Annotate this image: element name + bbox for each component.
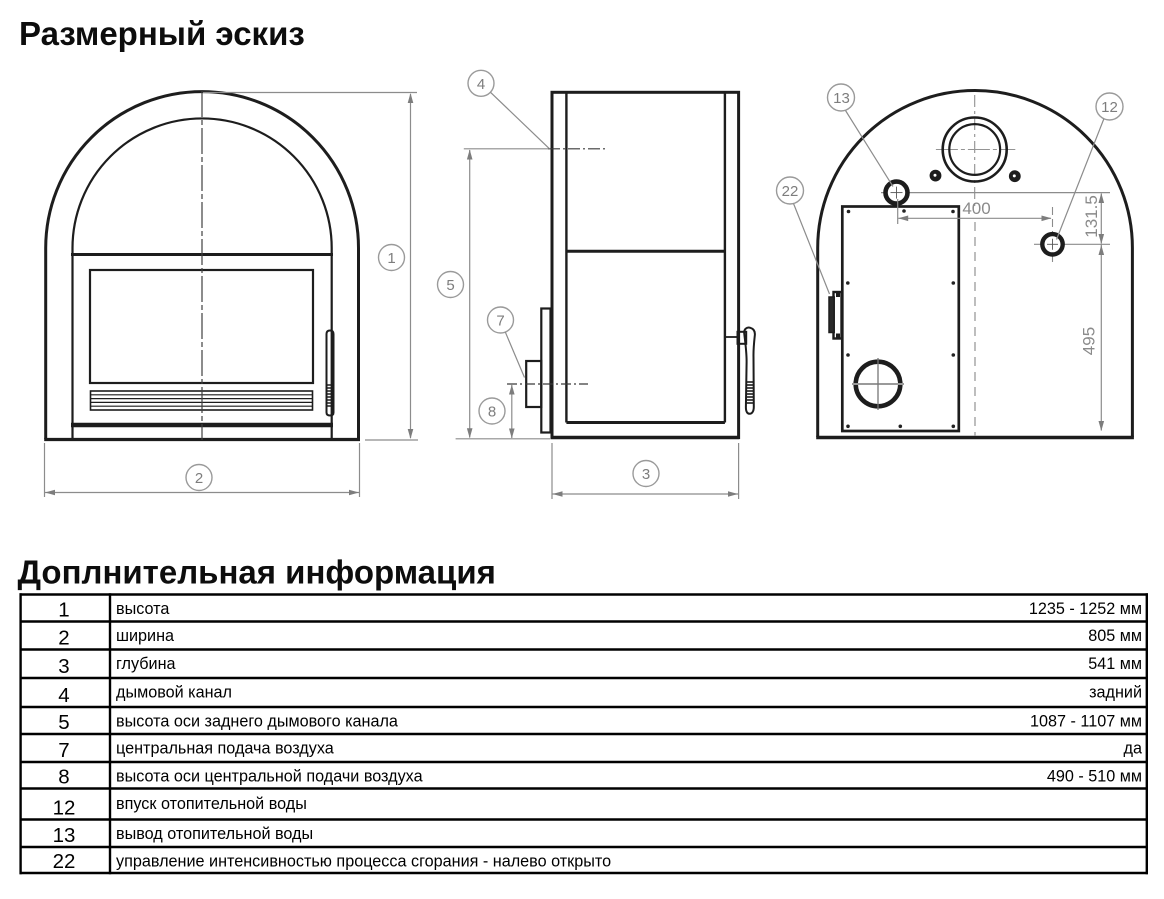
svg-text:490 - 510 мм: 490 - 510 мм (1047, 768, 1142, 786)
svg-text:5: 5 (446, 277, 454, 294)
svg-text:2: 2 (195, 470, 203, 487)
svg-text:управление интенсивностью проц: управление интенсивностью процесса сгора… (116, 853, 611, 871)
svg-text:8: 8 (488, 404, 496, 421)
svg-text:высота оси центральной подачи: высота оси центральной подачи воздуха (116, 768, 423, 786)
svg-text:1: 1 (387, 250, 395, 267)
svg-text:7: 7 (496, 313, 504, 330)
svg-text:1087 - 1107 мм: 1087 - 1107 мм (1030, 713, 1142, 731)
svg-text:4: 4 (477, 76, 485, 93)
svg-text:высота оси заднего дымового ка: высота оси заднего дымового канала (116, 713, 398, 731)
svg-text:5: 5 (58, 711, 69, 734)
svg-text:1: 1 (58, 598, 69, 621)
svg-text:вывод отопительной воды: вывод отопительной воды (116, 825, 313, 843)
svg-text:541 мм: 541 мм (1088, 655, 1142, 673)
svg-text:ширина: ширина (116, 627, 174, 645)
svg-text:13: 13 (53, 824, 76, 847)
svg-text:495: 495 (1080, 327, 1099, 355)
svg-text:да: да (1124, 740, 1142, 758)
svg-text:4: 4 (58, 684, 69, 707)
svg-text:задний: задний (1089, 684, 1142, 702)
svg-text:центральная подача воздуха: центральная подача воздуха (116, 740, 334, 758)
svg-text:12: 12 (1101, 99, 1118, 116)
svg-text:8: 8 (58, 765, 69, 788)
svg-text:1235 - 1252 мм: 1235 - 1252 мм (1029, 600, 1142, 618)
svg-text:впуск отопительной воды: впуск отопительной воды (116, 795, 307, 813)
svg-text:131.5: 131.5 (1082, 195, 1101, 238)
svg-text:дымовой канал: дымовой канал (116, 684, 232, 702)
svg-text:400: 400 (962, 199, 990, 218)
svg-text:22: 22 (782, 183, 799, 200)
svg-text:2: 2 (58, 626, 69, 649)
svg-text:3: 3 (58, 655, 69, 678)
svg-text:7: 7 (58, 739, 69, 762)
svg-text:Размерный эскиз: Размерный эскиз (19, 15, 305, 52)
svg-text:глубина: глубина (116, 655, 176, 673)
svg-text:высота: высота (116, 600, 169, 618)
svg-text:Доплнительная информация: Доплнительная информация (18, 554, 496, 591)
svg-text:805 мм: 805 мм (1088, 627, 1142, 645)
svg-text:12: 12 (53, 796, 76, 819)
svg-text:3: 3 (642, 466, 650, 483)
svg-text:13: 13 (833, 90, 850, 107)
svg-text:22: 22 (53, 850, 76, 873)
